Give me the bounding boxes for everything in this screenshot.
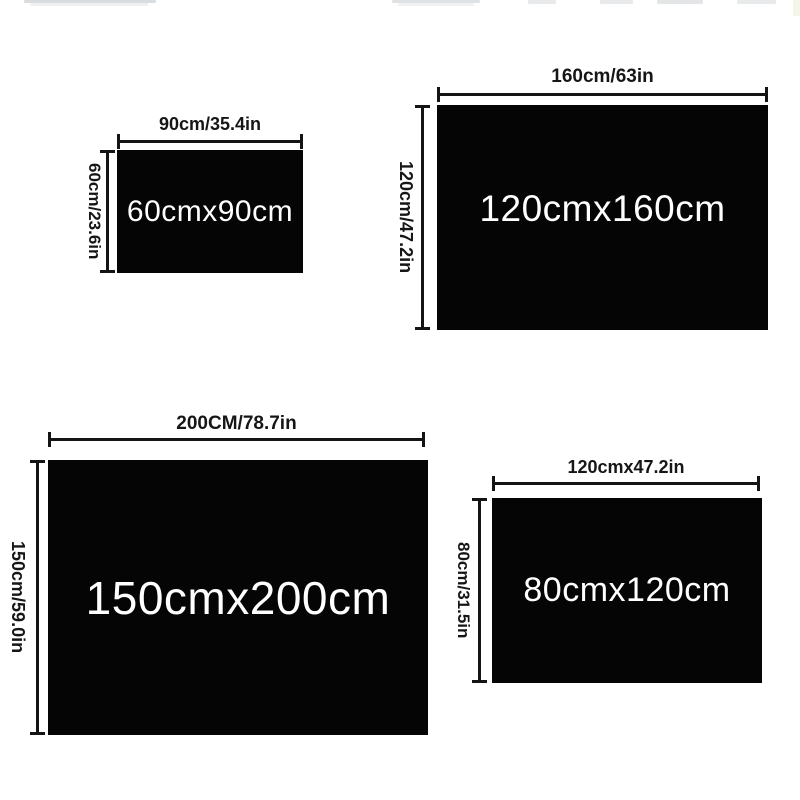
cropped-text-artifact <box>737 0 776 4</box>
height-dimension-line <box>478 498 481 683</box>
cropped-text-artifact <box>528 0 556 4</box>
width-dimension-line <box>117 140 303 143</box>
width-dimension-line <box>437 93 768 96</box>
size-text: 60cmx90cm <box>127 195 293 229</box>
width-dimension-label: 90cm/35.4in <box>117 114 303 135</box>
size-text: 120cmx160cm <box>479 188 725 230</box>
cropped-text-artifact <box>398 3 474 6</box>
size-rectangle: 60cmx90cm <box>117 150 303 273</box>
height-dimension-label: 120cm/47.2in <box>395 105 416 330</box>
height-dimension-label: 80cm/31.5in <box>453 498 473 683</box>
width-dimension-line <box>48 438 425 441</box>
height-dimension-label: 60cm/23.6in <box>84 150 104 273</box>
width-dimension-label: 160cm/63in <box>437 66 768 88</box>
size-chart-diagram: 90cm/35.4in 60cm/23.6in 60cmx90cm 160cm/… <box>0 0 800 800</box>
size-rectangle: 80cmx120cm <box>492 498 762 683</box>
cropped-text-artifact <box>30 3 148 6</box>
size-rectangle: 150cmx200cm <box>48 460 428 735</box>
size-text: 80cmx120cm <box>523 571 730 610</box>
cropped-text-artifact <box>657 0 703 4</box>
height-dimension-label: 150cm/59.0in <box>7 460 28 735</box>
width-dimension-line <box>492 482 760 485</box>
size-rectangle: 120cmx160cm <box>437 105 768 330</box>
height-dimension-line <box>421 105 424 330</box>
width-dimension-label: 200CM/78.7in <box>48 413 425 435</box>
cropped-text-artifact <box>600 0 633 4</box>
width-dimension-label: 120cmx47.2in <box>492 457 760 478</box>
cropped-text-artifact <box>793 0 800 16</box>
height-dimension-line <box>36 460 39 735</box>
height-dimension-line <box>106 150 109 273</box>
size-text: 150cmx200cm <box>86 571 391 625</box>
